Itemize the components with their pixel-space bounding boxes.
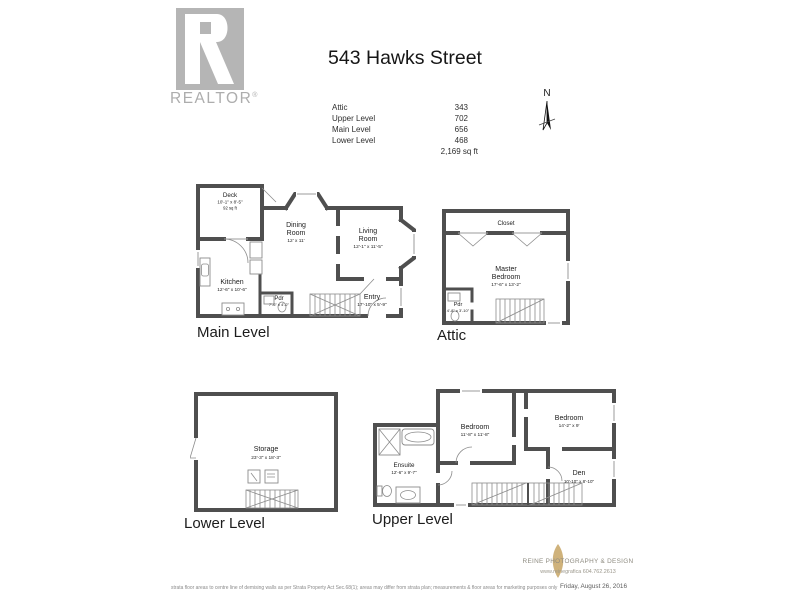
attic-floorplan: Closet Master Bedroom 17'-6" x 13'-2" Pd… xyxy=(438,205,574,329)
room-name: Bedroom xyxy=(492,274,521,281)
room-dims: 17'-10" x 5'-9" xyxy=(357,302,387,308)
room-dims: 17'-6" x 13'-2" xyxy=(491,282,521,288)
room-name: Entry xyxy=(364,294,381,301)
north-arrow-icon: N xyxy=(533,84,561,138)
room-name: Living xyxy=(359,228,377,235)
stove-icon xyxy=(222,303,244,315)
plan-title-main-level: Main Level xyxy=(197,324,270,341)
room-name: Storage xyxy=(254,446,279,453)
room-dims: 4'-8" x 3'-10" xyxy=(447,308,470,313)
toilet-icon xyxy=(377,486,392,497)
disclaimer-text: strata floor areas to centre line of dem… xyxy=(171,585,551,591)
realtor-wordmark: REALTOR® xyxy=(170,90,254,108)
utility-icons xyxy=(248,470,278,483)
plan-title-lower-level: Lower Level xyxy=(184,515,265,532)
plan-title-attic: Attic xyxy=(437,327,466,344)
room-name: Room xyxy=(287,230,306,237)
table-row: Main Level 656 xyxy=(332,124,468,135)
row-label: Lower Level xyxy=(332,135,375,146)
plan-title-upper-level: Upper Level xyxy=(372,511,453,528)
main-level-floorplan: Deck 10'-1" x 8'-5" 92 sq ft Dining Room… xyxy=(192,182,422,322)
room-dims: 10'-1" x 8'-5" xyxy=(217,200,243,205)
room-dims: 11'-8" x 11'-8" xyxy=(461,432,490,438)
room-name: Deck xyxy=(223,192,238,199)
room-name: Bedroom xyxy=(555,415,584,422)
fridge-icon xyxy=(250,242,262,258)
room-dims: 7'-6" x 4'-2" xyxy=(269,302,290,307)
row-value: 702 xyxy=(455,113,468,124)
upper-level-floorplan: Bedroom 11'-8" x 11'-8" Bedroom 14'-2" x… xyxy=(368,385,624,511)
room-name: Ensuite xyxy=(393,462,415,469)
room-dims: 10'-10" x 8'-10" xyxy=(564,479,595,484)
area-summary-table: Attic 343 Upper Level 702 Main Level 656… xyxy=(332,102,468,146)
stairs-icon xyxy=(246,490,298,508)
room-dims: 12' x 11' xyxy=(287,238,304,244)
ensuite-door-arc xyxy=(438,471,452,485)
row-label: Attic xyxy=(332,102,348,113)
row-value: 468 xyxy=(455,135,468,146)
room-dims: 14'-2" x 9' xyxy=(559,423,580,429)
room-dims: 23'-3" x 18'-3" xyxy=(251,455,281,461)
stairs-icon xyxy=(310,294,360,316)
bedroom-door-arc xyxy=(456,447,472,463)
area-total: 2,169 sq ft xyxy=(322,147,478,156)
table-row: Lower Level 468 xyxy=(332,135,468,146)
room-name: Den xyxy=(573,470,586,477)
bathtub-icon xyxy=(402,429,434,445)
bathroom-sink-icon xyxy=(396,487,420,503)
room-dims: 12'-1" x 11'-5" xyxy=(353,244,382,250)
north-label: N xyxy=(543,88,550,99)
row-label: Main Level xyxy=(332,124,371,135)
room-dims: 12'-6" x 10'-6" xyxy=(217,287,247,293)
registered-mark: ® xyxy=(252,92,259,99)
kitchen-sink-icon xyxy=(200,258,210,286)
photography-contact: www.reinegrafica 604.762.2613 xyxy=(521,569,635,575)
table-row: Attic 343 xyxy=(332,102,468,113)
deck-door-arc xyxy=(224,239,248,263)
room-name: Master xyxy=(495,266,517,273)
lower-level-floorplan: Storage 23'-3" x 18'-3" xyxy=(190,388,342,514)
den-door-arc xyxy=(548,467,562,481)
row-value: 343 xyxy=(455,102,468,113)
photography-credit: REINE PHOTOGRAPHY & DESIGN xyxy=(521,558,635,565)
room-name: Closet xyxy=(497,221,514,227)
realtor-logo-icon xyxy=(176,8,244,90)
room-area: 92 sq ft xyxy=(223,206,238,211)
room-name: Bedroom xyxy=(461,424,490,431)
stairs-icon xyxy=(472,483,582,505)
room-dims: 12'-6" x 9'-7" xyxy=(391,470,417,475)
shower-icon xyxy=(379,429,400,455)
counter-icon xyxy=(250,260,262,274)
room-name: Room xyxy=(359,236,378,243)
room-name: Kitchen xyxy=(220,279,243,286)
floorplan-sheet: REALTOR® 543 Hawks Street Attic 343 Uppe… xyxy=(0,0,800,600)
room-name: Dining xyxy=(286,222,306,229)
row-value: 656 xyxy=(455,124,468,135)
page-title: 543 Hawks Street xyxy=(290,47,520,70)
stairs-icon xyxy=(496,299,544,323)
table-row: Upper Level 702 xyxy=(332,113,468,124)
row-label: Upper Level xyxy=(332,113,375,124)
